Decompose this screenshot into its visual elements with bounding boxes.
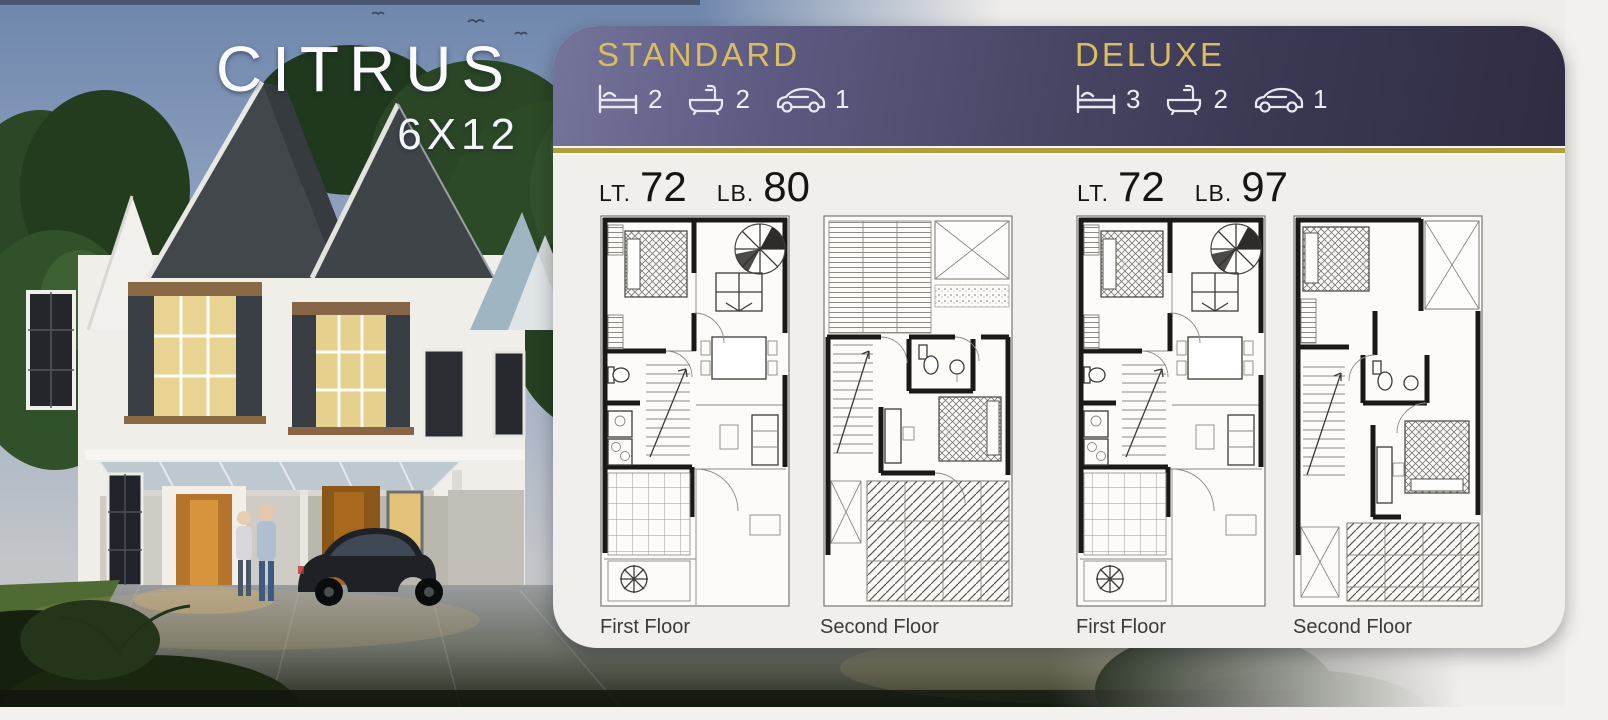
feature-count: 2 [648,84,662,115]
card-body: LT. 72 LB. 80 LT. 72 LB. 97 [553,155,1565,648]
lt-label: LT. [1077,180,1109,207]
variant-name: STANDARD [597,36,873,74]
variant-name: DELUXE [1075,36,1351,74]
bed-icon [1075,84,1117,114]
gold-rule [553,146,1565,155]
lb-value: 80 [763,163,810,211]
floor-plan-deluxe-first [1076,215,1266,607]
variant-deluxe: DELUXE 3 2 [1075,36,1351,115]
feature-garage: 1 [774,84,849,115]
bed-icon [597,84,639,114]
feature-count: 2 [1213,84,1227,115]
feature-row: 3 2 1 [1075,83,1351,115]
lb-value: 97 [1241,163,1288,211]
car-icon [774,84,826,114]
floor-label: Second Floor [820,616,939,639]
floor-label: First Floor [1076,616,1166,639]
feature-count: 2 [735,84,749,115]
header-band: STANDARD 2 2 [553,26,1565,146]
variant-standard: STANDARD 2 2 [597,36,873,115]
feature-bedrooms: 3 [1075,84,1140,115]
bath-icon [1164,83,1204,115]
floor-plan-standard-second [823,215,1013,607]
area-deluxe: LT. 72 LB. 97 [1077,163,1288,211]
lt-value: 72 [640,163,687,211]
lb-label: LB. [717,180,755,207]
floor-label: Second Floor [1293,616,1412,639]
lt-value: 72 [1118,163,1165,211]
area-standard: LT. 72 LB. 80 [599,163,810,211]
bath-icon [686,83,726,115]
hero-subtitle: 6X12 [170,110,520,160]
lt-label: LT. [599,180,631,207]
feature-bathrooms: 2 [1164,83,1227,115]
feature-count: 1 [835,84,849,115]
floor-label: First Floor [600,616,690,639]
feature-bathrooms: 2 [686,83,749,115]
floor-plan-deluxe-second [1293,215,1483,607]
feature-row: 2 2 1 [597,83,873,115]
brochure-page: CITRUS 6X12 STANDARD 2 [0,0,1608,720]
floor-plan-standard-first [600,215,790,607]
feature-bedrooms: 2 [597,84,662,115]
hero-title: CITRUS [170,32,560,106]
feature-count: 3 [1126,84,1140,115]
feature-count: 1 [1313,84,1327,115]
spec-card: STANDARD 2 2 [553,26,1565,648]
lb-label: LB. [1195,180,1233,207]
car-icon [1252,84,1304,114]
feature-garage: 1 [1252,84,1327,115]
